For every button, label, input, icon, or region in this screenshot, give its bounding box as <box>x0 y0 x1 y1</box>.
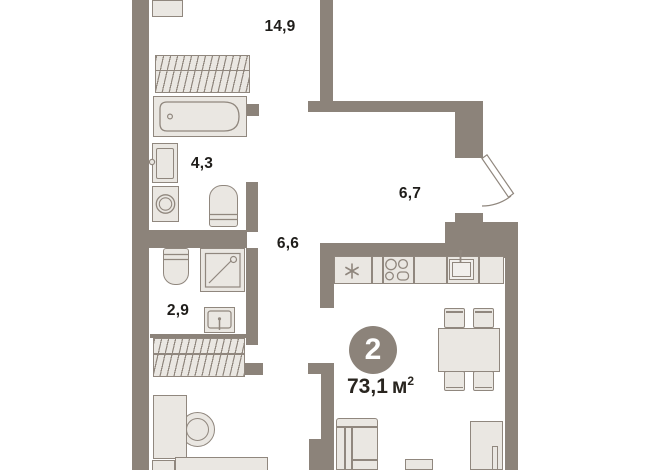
wardrobe-2 <box>153 338 245 377</box>
wall-lower-divider <box>321 363 334 470</box>
bathroom-sink <box>152 143 178 183</box>
wc-sink <box>204 307 235 333</box>
wardrobe <box>155 55 250 93</box>
wardrobe-rail <box>154 353 244 355</box>
wall-doorway-stub-left <box>243 363 263 375</box>
counter-divider <box>382 257 384 283</box>
wall-tub-stub <box>247 104 259 116</box>
kitchen-sink <box>449 259 474 280</box>
entrance-door-arc <box>482 196 511 206</box>
dining-chair <box>473 308 494 328</box>
dining-table <box>438 328 500 372</box>
room-area-label-living: 14,9 <box>265 18 296 36</box>
total-area-label: 73,1м2 <box>347 374 414 399</box>
room-area-label-wc: 2,9 <box>167 302 189 320</box>
wall-hall-top <box>308 101 468 112</box>
room-area-label-hallway: 6,7 <box>399 185 421 203</box>
wall-wc-right <box>246 248 258 345</box>
total-area-superscript: 2 <box>407 374 414 388</box>
wall-bath-right <box>246 182 258 232</box>
shower-cabin <box>200 248 245 292</box>
desk-chair-seat <box>186 418 209 441</box>
sofa-armrest-line <box>351 428 353 469</box>
total-area-value: 73,1 <box>347 375 388 398</box>
kitchen-sink-basin <box>452 262 471 277</box>
chair-backrest <box>446 311 463 313</box>
bathtub <box>153 96 247 137</box>
room-area-label-corridor: 6,6 <box>277 235 299 253</box>
bed-headboard <box>152 460 175 470</box>
chair-backrest <box>475 311 492 313</box>
toilet <box>209 185 238 227</box>
wall-bath-wc-divider <box>148 230 247 248</box>
wall-entry-upper <box>455 101 483 158</box>
dining-chair <box>444 308 465 328</box>
tv-cabinet <box>470 421 503 470</box>
counter-divider <box>446 257 448 283</box>
chair-backrest <box>446 387 463 389</box>
room-area-label-bathroom: 4,3 <box>191 155 213 173</box>
floor-plan: 14,9 4,3 6,7 6,6 2,9 2 73,1м2 <box>0 0 654 470</box>
wall-lower-foot <box>309 439 321 470</box>
tv <box>492 446 498 470</box>
rooms-count-badge: 2 <box>349 326 397 374</box>
toilet-wc <box>163 248 189 285</box>
washing-machine <box>152 186 179 222</box>
dining-chair <box>444 371 465 391</box>
wall-right-exterior <box>505 222 518 470</box>
bed <box>175 457 268 470</box>
sofa-back-edge <box>337 426 377 428</box>
counter-divider <box>371 257 373 283</box>
cabinet <box>152 0 183 17</box>
counter-divider <box>478 257 480 283</box>
wall-top-divider <box>320 0 333 111</box>
sofa-seat-divider <box>351 459 377 461</box>
sink-basin <box>156 148 174 179</box>
sofa-armrest-line <box>344 428 346 469</box>
wardrobe-rail <box>156 70 249 72</box>
desk <box>153 395 187 459</box>
sofa <box>336 418 378 470</box>
total-area-unit: м <box>392 375 408 398</box>
entrance-door-leaf <box>482 155 514 197</box>
counter-divider <box>413 257 415 283</box>
coffee-table <box>405 459 433 470</box>
chair-backrest <box>475 387 492 389</box>
wall-kitchen-left <box>320 243 334 308</box>
wall-left-exterior <box>132 0 149 470</box>
dining-chair <box>473 371 494 391</box>
kitchen-counter <box>334 256 504 284</box>
